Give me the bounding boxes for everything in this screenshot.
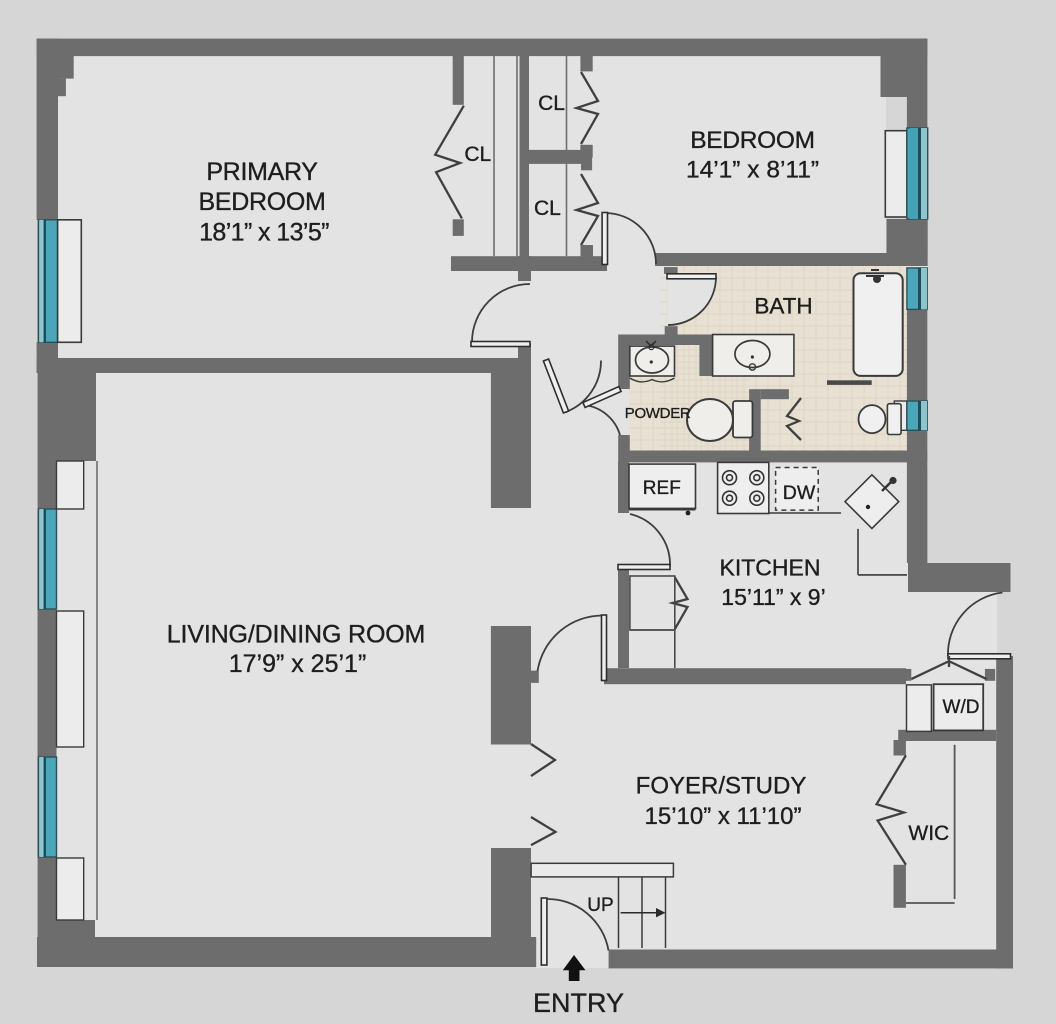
svg-text:BEDROOM: BEDROOM xyxy=(198,188,325,216)
svg-text:15’11” x 9’: 15’11” x 9’ xyxy=(721,584,825,610)
svg-text:KITCHEN: KITCHEN xyxy=(720,555,821,581)
svg-text:CL: CL xyxy=(464,143,491,166)
svg-text:BEDROOM: BEDROOM xyxy=(690,127,815,154)
svg-text:UP: UP xyxy=(587,895,613,916)
svg-text:LIVING/DINING ROOM: LIVING/DINING ROOM xyxy=(167,621,425,649)
svg-text:15’10” x 11’10”: 15’10” x 11’10” xyxy=(645,803,802,830)
svg-text:REF: REF xyxy=(643,478,681,499)
svg-text:PRIMARY: PRIMARY xyxy=(206,158,318,186)
svg-text:BATH: BATH xyxy=(754,294,812,319)
svg-text:FOYER/STUDY: FOYER/STUDY xyxy=(636,773,807,800)
svg-text:WIC: WIC xyxy=(908,822,949,845)
svg-text:CL: CL xyxy=(538,92,565,115)
svg-text:CL: CL xyxy=(534,197,561,220)
svg-text:POWDER: POWDER xyxy=(625,405,691,422)
svg-text:18’1” x 13’5”: 18’1” x 13’5” xyxy=(199,219,329,247)
svg-text:W/D: W/D xyxy=(943,697,980,718)
svg-text:17’9” x 25’1”: 17’9” x 25’1” xyxy=(229,650,367,678)
svg-text:14’1” x 8’11”: 14’1” x 8’11” xyxy=(686,157,819,184)
svg-text:ENTRY: ENTRY xyxy=(533,988,624,1018)
svg-text:DW: DW xyxy=(783,482,816,504)
